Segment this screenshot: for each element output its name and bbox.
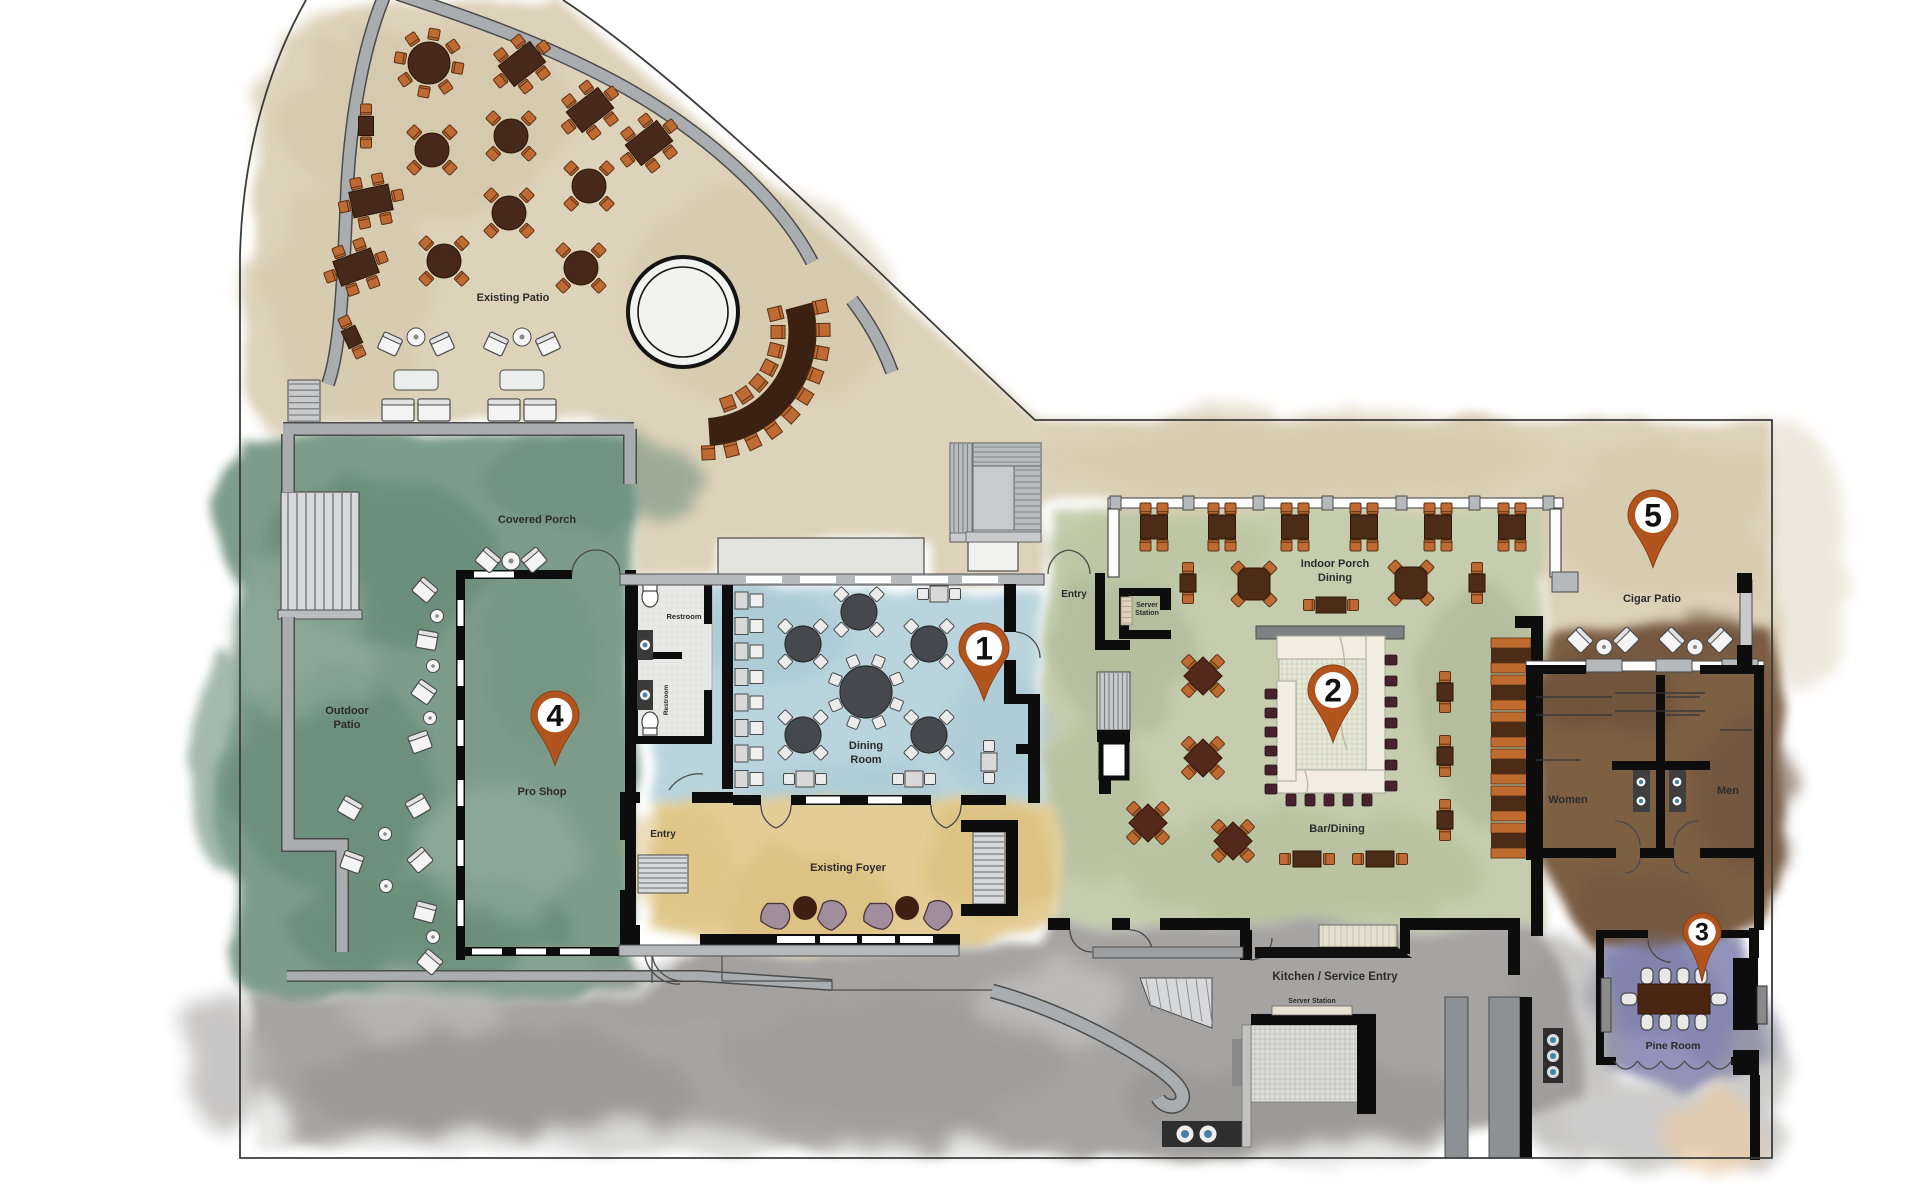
- svg-text:Restroom: Restroom: [666, 612, 701, 621]
- svg-text:5: 5: [1644, 498, 1662, 534]
- svg-text:Server: Server: [1136, 602, 1158, 609]
- svg-text:Women: Women: [1548, 794, 1588, 806]
- svg-text:Men: Men: [1717, 785, 1739, 797]
- svg-text:Pine Room: Pine Room: [1646, 1040, 1701, 1052]
- svg-text:3: 3: [1695, 919, 1709, 947]
- svg-text:4: 4: [546, 698, 564, 733]
- svg-text:Entry: Entry: [1061, 589, 1087, 600]
- svg-text:Dining: Dining: [1318, 572, 1352, 584]
- svg-text:1: 1: [975, 631, 993, 667]
- svg-text:Existing Patio: Existing Patio: [477, 292, 550, 304]
- svg-text:Entry: Entry: [650, 829, 676, 840]
- svg-text:Patio: Patio: [334, 719, 361, 731]
- svg-text:Indoor Porch: Indoor Porch: [1301, 558, 1370, 570]
- svg-text:Station: Station: [1135, 610, 1159, 617]
- svg-text:Existing Foyer: Existing Foyer: [810, 862, 887, 874]
- svg-text:Restroom: Restroom: [663, 685, 670, 716]
- svg-text:Server Station: Server Station: [1288, 998, 1335, 1005]
- svg-text:Dining: Dining: [849, 740, 883, 752]
- svg-text:Pro Shop: Pro Shop: [518, 786, 567, 798]
- svg-text:Room: Room: [850, 754, 881, 766]
- svg-text:2: 2: [1324, 673, 1342, 709]
- svg-text:Cigar Patio: Cigar Patio: [1623, 593, 1681, 605]
- svg-text:Covered Porch: Covered Porch: [498, 514, 577, 526]
- svg-text:Outdoor: Outdoor: [325, 705, 369, 717]
- svg-text:Kitchen / Service Entry: Kitchen / Service Entry: [1272, 971, 1398, 983]
- svg-text:Bar/Dining: Bar/Dining: [1309, 823, 1365, 835]
